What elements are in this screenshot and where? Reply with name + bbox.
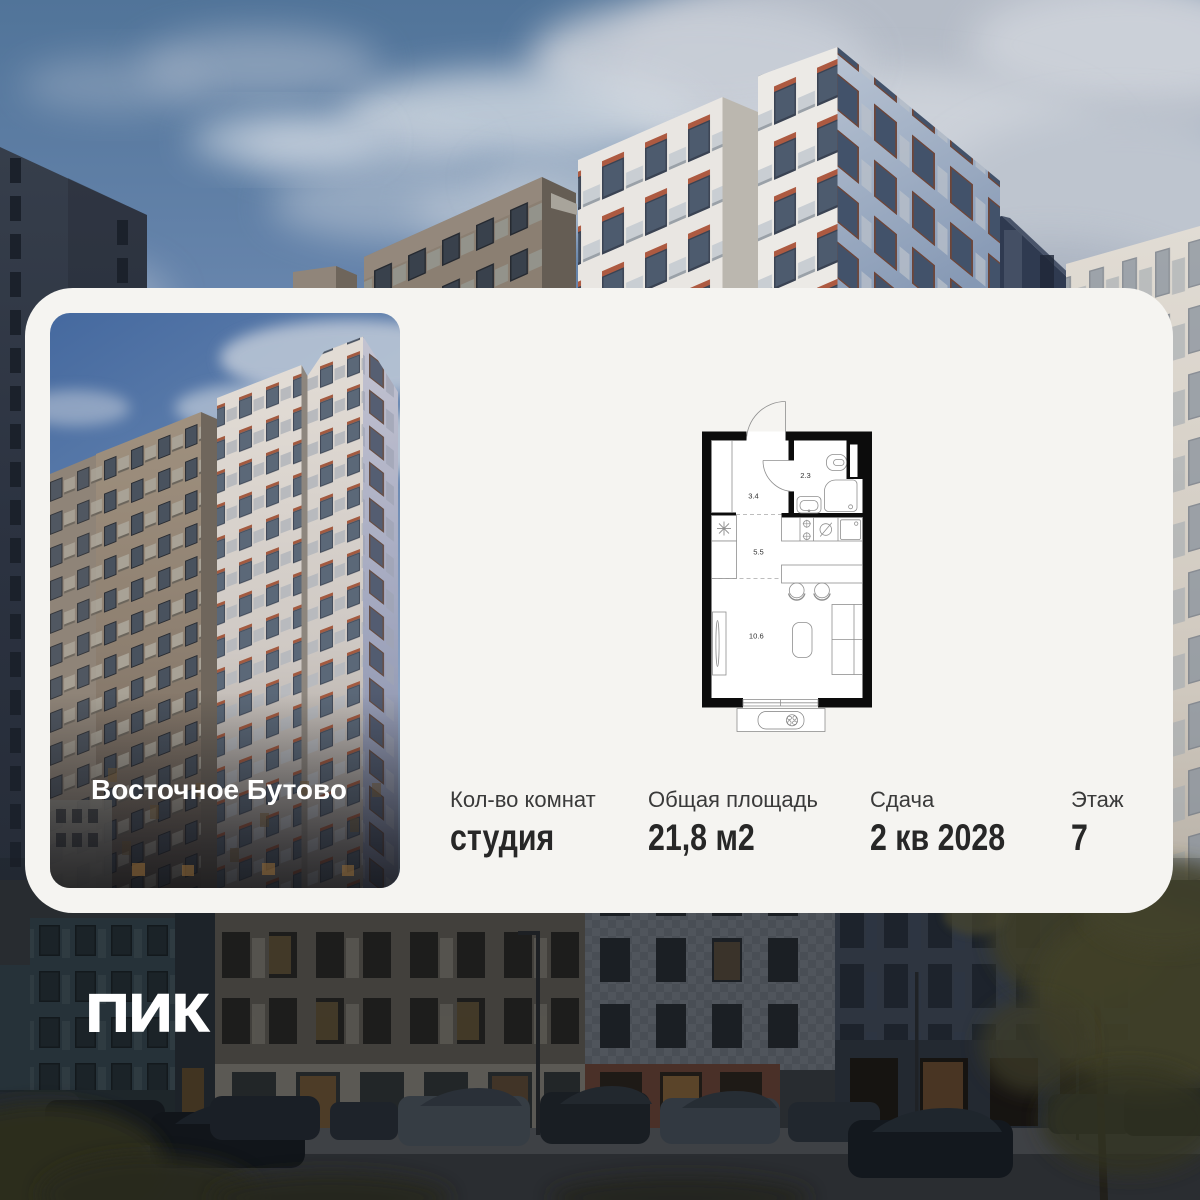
svg-text:10.6: 10.6 bbox=[749, 631, 764, 640]
svg-text:5.5: 5.5 bbox=[753, 548, 764, 557]
svg-text:2.3: 2.3 bbox=[800, 471, 811, 480]
svg-text:3.4: 3.4 bbox=[748, 491, 759, 500]
